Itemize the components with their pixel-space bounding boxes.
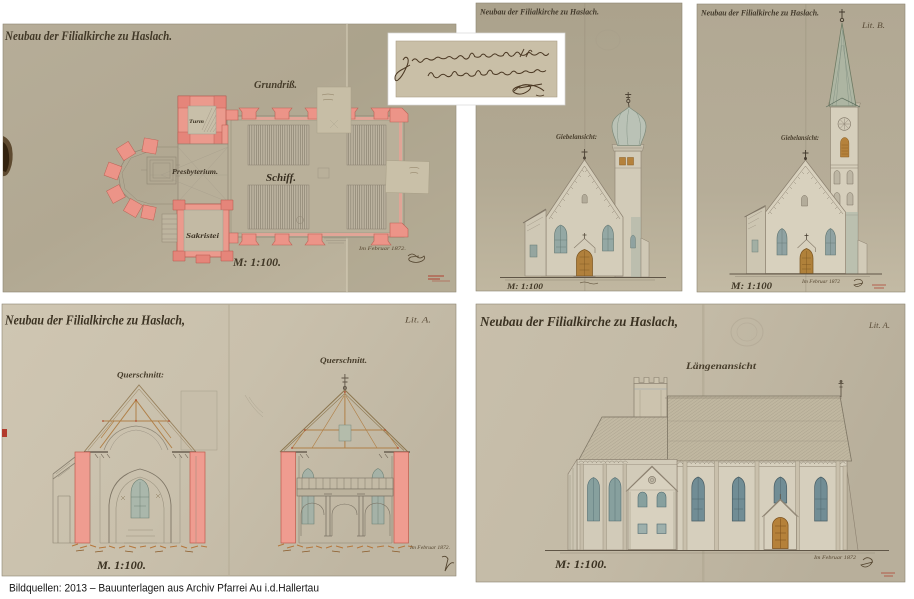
svg-text:M: 1:100.: M: 1:100. — [554, 557, 607, 571]
svg-text:Grundriß.: Grundriß. — [254, 80, 297, 91]
svg-text:M: 1:100.: M: 1:100. — [232, 257, 281, 269]
svg-text:Giebelansicht:: Giebelansicht: — [556, 133, 597, 141]
svg-text:Lit. A.: Lit. A. — [404, 315, 431, 325]
svg-text:Im Februar 1872: Im Februar 1872 — [801, 280, 841, 285]
svg-text:Giebelansicht:: Giebelansicht: — [781, 134, 819, 142]
svg-text:M: 1:100: M: 1:100 — [506, 281, 544, 291]
svg-text:Lit. B.: Lit. B. — [861, 20, 885, 30]
svg-text:Lit. A.: Lit. A. — [868, 320, 890, 330]
svg-text:Sakristei: Sakristei — [186, 233, 219, 240]
svg-text:Neubau der Filialkirche zu Has: Neubau der Filialkirche zu Haslach. — [700, 8, 819, 18]
svg-text:Neubau der Filialkirche zu Has: Neubau der Filialkirche zu Haslach. — [4, 29, 172, 43]
svg-text:Im Februar 1872.: Im Februar 1872. — [358, 246, 406, 252]
svg-text:Schiff.: Schiff. — [266, 173, 296, 184]
svg-text:Neubau der Filialkirche zu Has: Neubau der Filialkirche zu Haslach, — [479, 315, 678, 330]
svg-text:Presbyterium.: Presbyterium. — [172, 168, 218, 176]
svg-text:Längenansicht: Längenansicht — [685, 362, 757, 372]
svg-text:Querschnitt:: Querschnitt: — [117, 371, 164, 380]
svg-text:Im Februar 1872.: Im Februar 1872. — [409, 546, 450, 551]
svg-text:Turm: Turm — [189, 119, 205, 125]
svg-text:M: 1:100: M: 1:100 — [730, 281, 773, 291]
svg-text:Querschnitt.: Querschnitt. — [320, 356, 367, 365]
svg-text:M. 1:100.: M. 1:100. — [96, 558, 146, 572]
svg-text:Bildquellen: 2013 – Bauunterla: Bildquellen: 2013 – Bauunterlagen aus Ar… — [9, 583, 319, 595]
svg-text:Neubau der Filialkirche zu Has: Neubau der Filialkirche zu Haslach, — [4, 313, 185, 328]
svg-text:Im Februar 1872: Im Februar 1872 — [813, 556, 857, 561]
svg-text:Neubau der Filialkirche zu Has: Neubau der Filialkirche zu Haslach. — [479, 7, 599, 17]
